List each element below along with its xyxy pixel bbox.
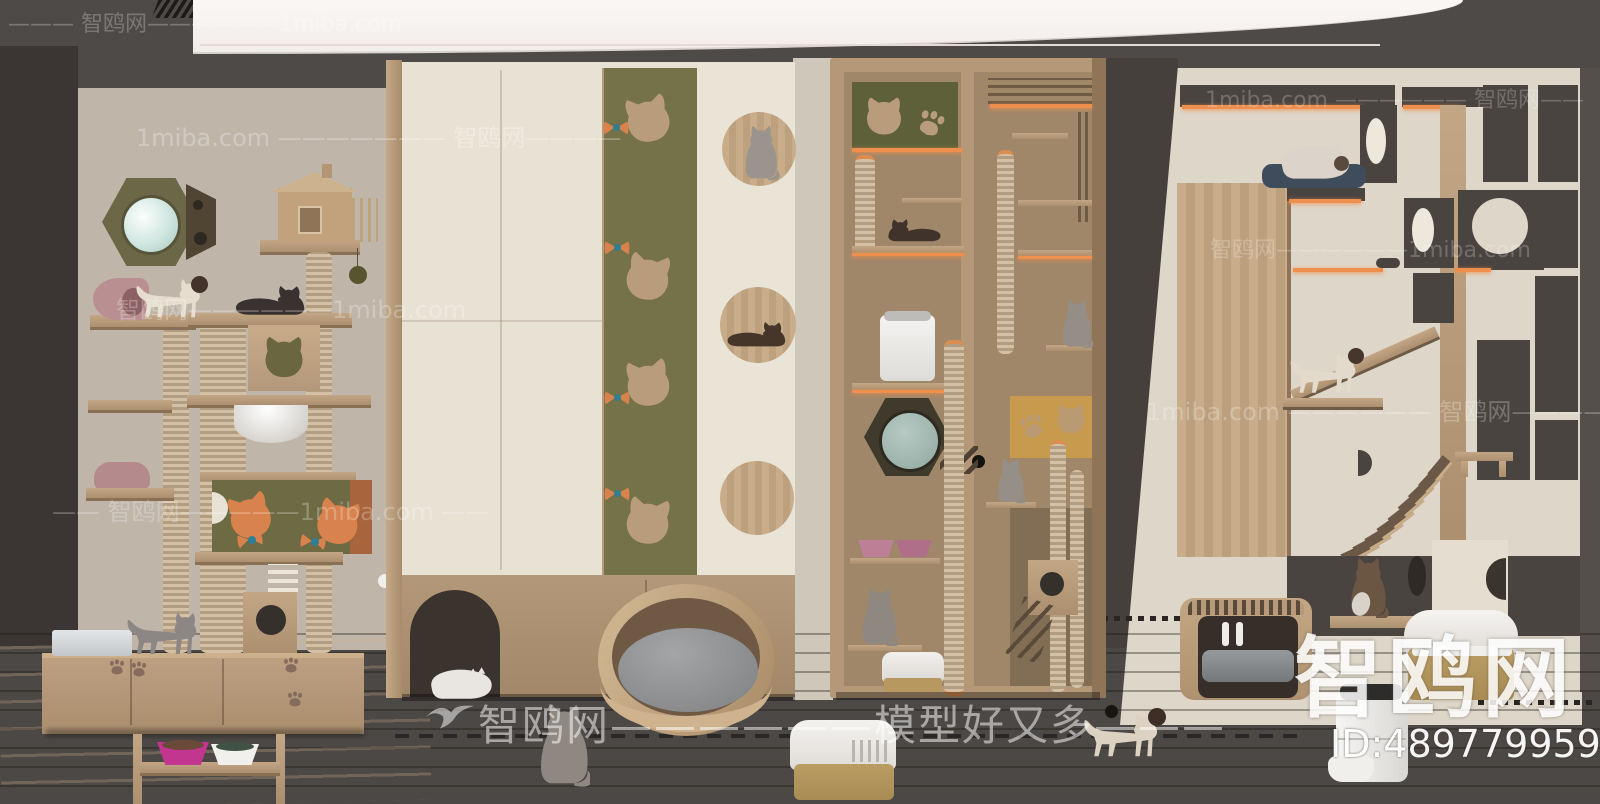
wardrobe-door-seam-h (402, 320, 602, 322)
led-strip-5 (1018, 256, 1092, 259)
slatted-house-bar-2 (1236, 622, 1243, 646)
hex-pod-glass-window (121, 195, 181, 255)
cat-siamese-standing-head (191, 276, 208, 293)
slatted-house-roof (1188, 600, 1304, 615)
rw-pill-hole (1376, 258, 1400, 268)
cat-dark-lying (234, 280, 310, 320)
open-litter-box-vents (852, 740, 888, 762)
cat-head-panel (248, 325, 320, 391)
cabinet-bowl-pink-2 (896, 540, 932, 557)
rw-bench-leg-2 (1499, 461, 1506, 477)
ladder-steps (268, 564, 298, 592)
cat-tabby-sitting-cabinet-1 (1056, 298, 1094, 348)
cat-tabby-sitting-cabinet-3 (856, 586, 898, 646)
led-strip-1 (852, 148, 962, 152)
cat-gray-walking (120, 610, 210, 656)
pet-feeder-lid (1340, 684, 1402, 700)
cat-head-cutout (260, 333, 308, 381)
rw-bench-leg-1 (1461, 461, 1468, 477)
cat-dark-lying-cabinet (884, 210, 942, 250)
cabinet-cube-hole (1040, 572, 1064, 596)
hex-pod-side-hole-2 (194, 232, 207, 245)
cabinet-bowl-pink-1 (858, 540, 894, 557)
cat-in-hole-2 (726, 317, 790, 351)
treehouse-chimney (322, 164, 332, 178)
paw-handle-2 (130, 660, 148, 678)
rw-divider-1 (1528, 85, 1538, 182)
led-strip-2 (852, 253, 964, 256)
rw-led-1 (1182, 105, 1362, 109)
cabinet-bottom-shadow (836, 692, 1100, 700)
treehouse-railing (352, 198, 378, 242)
rw-oval-hole-3 (1408, 556, 1426, 596)
render-canvas: ——— 智鸥网——————1miba.com 1miba.com ———————… (0, 0, 1600, 804)
wardrobe-side-edge (386, 60, 402, 698)
feeding-stand-shelf (140, 762, 280, 776)
food-bowl-magenta-kibble (162, 740, 204, 750)
slatted-house-bar-1 (1222, 622, 1229, 646)
toy-ball-string (357, 248, 358, 268)
curtain-edge-line (200, 44, 1380, 46)
rw-oval-hole-2 (1412, 208, 1434, 252)
paw-handle-4 (286, 690, 304, 708)
cabinet-feeder (880, 315, 935, 381)
rw-oval-hole-1 (1366, 118, 1386, 164)
cabinet-shelf-sm (902, 198, 962, 203)
food-bowl-white-water (216, 742, 254, 751)
left-wall (0, 46, 78, 646)
mustard-panel-cat-head-cutout (1054, 402, 1088, 436)
pet-feeder-band (1338, 738, 1406, 740)
cat-cabinet-side-panel (1092, 58, 1106, 698)
base-cabinet-seam-2 (222, 659, 224, 725)
cat-siamese-walking-shelf-head (1348, 348, 1364, 364)
cat-siamese-walking-floor-head (1148, 708, 1166, 726)
rw-led-4 (1293, 268, 1383, 272)
pink-bed-lower (94, 462, 150, 490)
rw-divider-3 (1535, 412, 1578, 420)
olive-panel-cat-head-cutout (862, 94, 906, 138)
floor-stitch-zigzag-2 (1478, 700, 1598, 705)
cat-in-hole-1 (738, 124, 780, 180)
port-hole-3 (720, 461, 794, 535)
cabinet-post-1 (855, 155, 875, 252)
rw-wood-column (1440, 105, 1466, 553)
slatted-house-cushion (1202, 650, 1294, 682)
seagull-logo-icon (424, 690, 476, 736)
medallion-cat-head-1 (616, 87, 680, 151)
wall-shelf-sm (1012, 133, 1068, 139)
medallion-dot-3 (614, 394, 621, 401)
cabinet-post-2 (944, 340, 964, 696)
pet-feeder-tray (1328, 756, 1374, 782)
round-bed-front-rim (600, 636, 772, 732)
cabinet-shelf-4 (1018, 200, 1092, 206)
paw-handle-1 (108, 658, 126, 676)
base-cabinet (42, 653, 364, 734)
medallion-dot-1 (613, 124, 620, 131)
pink-bed-platform (86, 488, 174, 501)
cabinet-hex-glass (879, 410, 941, 472)
hex-pod-side-hole-1 (193, 200, 203, 210)
cabinet-top-slats (988, 78, 1092, 104)
hole-cube-opening (256, 605, 286, 635)
rw-niche-top-left (1180, 85, 1395, 107)
hemisphere-bed (234, 405, 308, 443)
toy-hanging-ball (349, 266, 367, 284)
cat-tabby-sitting-cabinet-2 (993, 455, 1025, 505)
port-hole-1 (722, 112, 796, 186)
medallion-dot-4 (614, 490, 621, 497)
paw-handle-3 (282, 656, 300, 674)
rw-led-5 (1455, 268, 1491, 272)
rw-moon-circle (1472, 198, 1528, 254)
cabinet-feeder-lid (884, 311, 931, 321)
rw-bench-top (1455, 452, 1513, 461)
port-hole-2 (720, 287, 796, 363)
covered-litter-box-rim (1412, 646, 1512, 656)
wall-gap-mid (793, 58, 833, 700)
open-litter-box-base (794, 764, 894, 800)
base-cabinet-shadow (46, 729, 364, 737)
cat-curled-head-patch (1334, 156, 1349, 171)
rw-niche-small (1413, 273, 1454, 323)
rw-led-3 (1289, 199, 1361, 203)
right-edge-strip (1580, 68, 1600, 692)
bow-dot-1 (248, 536, 256, 544)
treehouse-window (298, 206, 322, 234)
rw-niche-top-right (1402, 87, 1488, 107)
bow-dot-2 (311, 538, 319, 546)
cat-tabby-sitting-floor (532, 698, 590, 790)
cat-tree-platform-small-left (88, 400, 172, 413)
bowl-stand-shelf (850, 558, 940, 564)
rw-big-wood-panel (1177, 183, 1291, 557)
cabinet-post-3 (997, 150, 1014, 354)
led-strip-4 (990, 104, 1092, 108)
medallion-dot-2 (614, 244, 621, 251)
cabinet-litter-base (884, 678, 942, 692)
